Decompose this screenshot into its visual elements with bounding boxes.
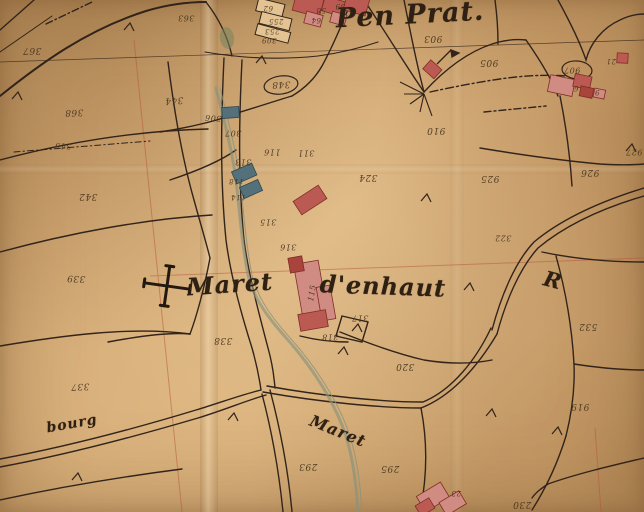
straight-reference-line — [0, 40, 644, 62]
pond — [219, 26, 236, 50]
slope-hachures — [400, 82, 432, 116]
large-cross — [141, 263, 192, 309]
parcel-boundaries — [0, 0, 644, 512]
cadastral-map: Pen Prat.Maretd'enhautbourgMaretR 367368… — [0, 0, 644, 512]
map-linework — [0, 0, 644, 512]
roads — [0, 188, 644, 512]
flag-arrow — [437, 50, 459, 64]
buildings-red — [288, 0, 628, 512]
buildings-outline — [255, 0, 292, 43]
red-survey-lines — [134, 40, 644, 512]
